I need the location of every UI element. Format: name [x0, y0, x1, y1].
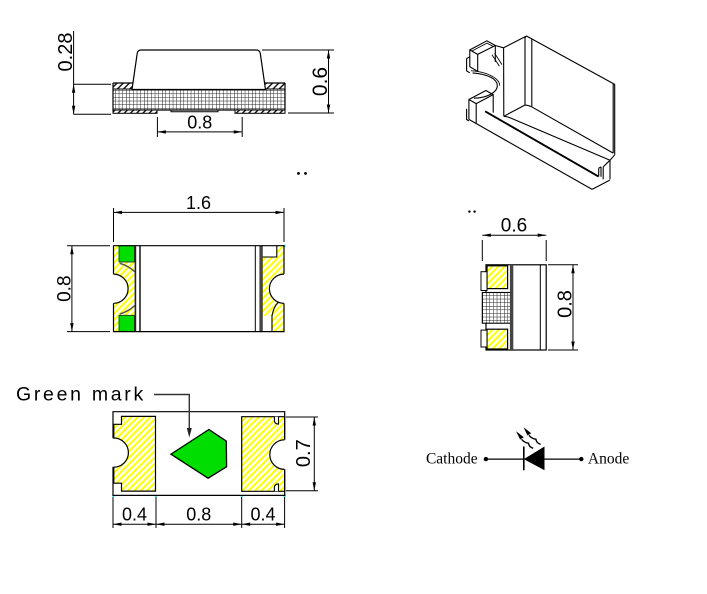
svg-text:0.8: 0.8 [187, 113, 212, 133]
svg-text:Cathode: Cathode [426, 451, 478, 468]
svg-text:0.8: 0.8 [186, 505, 211, 525]
svg-text:0.4: 0.4 [250, 505, 275, 525]
svg-text:0.6: 0.6 [309, 67, 332, 96]
svg-text:0.4: 0.4 [122, 505, 147, 525]
svg-text:Anode: Anode [588, 451, 629, 468]
svg-text:1.6: 1.6 [186, 193, 211, 213]
svg-text:0.28: 0.28 [55, 33, 77, 72]
svg-text:Green mark: Green mark [16, 384, 146, 406]
svg-text:0.7: 0.7 [293, 439, 315, 467]
svg-text:0.8: 0.8 [555, 290, 577, 318]
svg-text:0.6: 0.6 [501, 216, 527, 237]
svg-text:0.8: 0.8 [55, 275, 76, 301]
